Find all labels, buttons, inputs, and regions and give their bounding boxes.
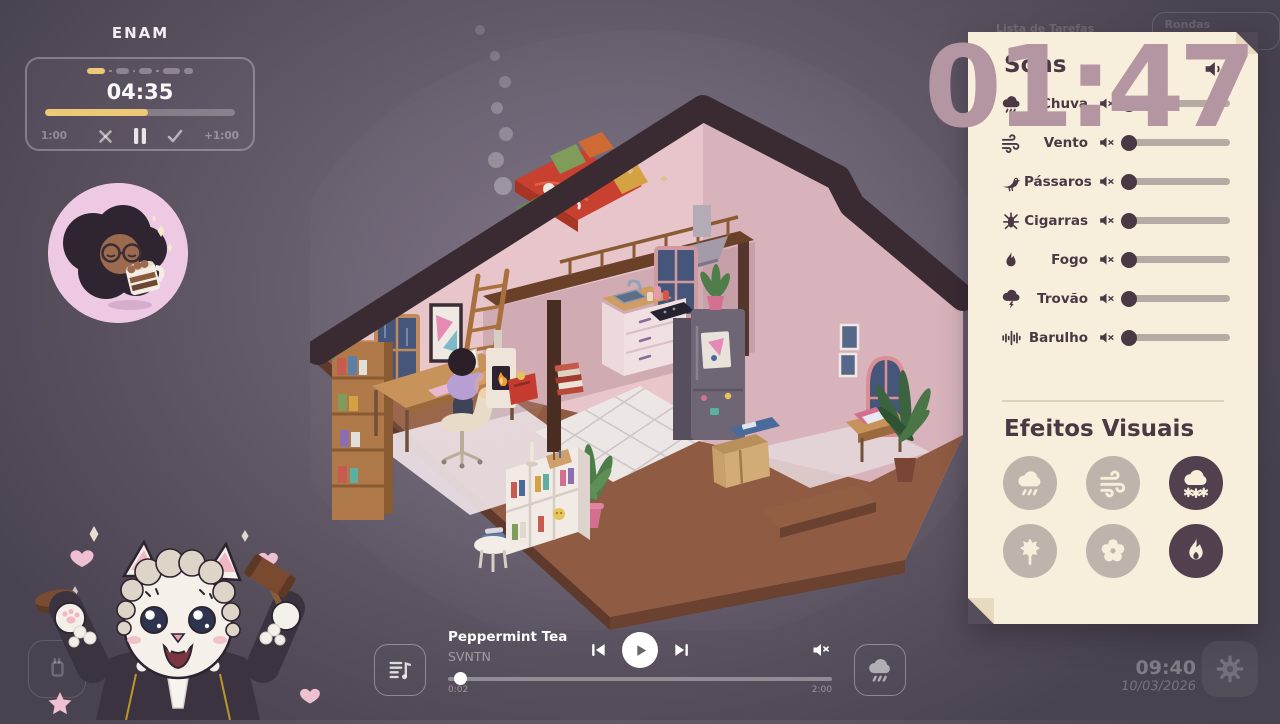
sound-label: Chuva <box>1024 96 1088 112</box>
sound-row-barulho: Barulho <box>968 318 1258 357</box>
mute-icon[interactable] <box>1096 134 1116 151</box>
player-progress-knob[interactable] <box>454 672 467 685</box>
settings-button[interactable] <box>1202 641 1258 697</box>
flame-icon <box>998 249 1024 271</box>
track-artist: SVNTN <box>448 649 491 664</box>
focus-timer-card: 04:35 1:00 +1:00 <box>25 57 255 151</box>
player-mute-button[interactable] <box>811 640 831 660</box>
next-track-button[interactable] <box>672 640 692 660</box>
effect-flowers-button[interactable] <box>1086 524 1140 578</box>
volume-slider[interactable] <box>1122 295 1230 302</box>
music-player: Peppermint Tea SVNTN 0:02 2:00 <box>370 625 910 705</box>
timer-segments <box>27 68 253 74</box>
sound-settings-panel: Sons Chuva Vento <box>968 32 1258 624</box>
check-icon <box>167 129 183 143</box>
volume-slider[interactable] <box>1122 334 1230 341</box>
rain-cloud-icon <box>865 655 895 685</box>
leaves-effect-icon <box>1014 535 1046 567</box>
judge-cat-svg <box>18 516 338 720</box>
sound-row-passaros: Pássaros <box>968 162 1258 201</box>
slider-knob[interactable] <box>1121 135 1137 151</box>
wind-icon <box>998 132 1024 154</box>
volume-slider[interactable] <box>1122 256 1230 263</box>
sound-label: Fogo <box>1024 252 1088 268</box>
session-title: ENAM <box>78 24 203 42</box>
slider-knob[interactable] <box>1121 330 1137 346</box>
slider-knob[interactable] <box>1121 96 1137 112</box>
flowers-effect-icon <box>1097 535 1129 567</box>
gear-icon <box>1213 652 1247 686</box>
cat-head <box>117 542 240 678</box>
storm-cloud-icon <box>998 288 1024 310</box>
rain-effect-icon <box>1014 467 1046 499</box>
playlist-music-icon <box>386 656 414 684</box>
fire-effect-icon <box>1180 535 1212 567</box>
sound-wave-icon <box>998 327 1024 349</box>
sound-row-trovao: Trovão <box>968 279 1258 318</box>
speaker-icon <box>1202 58 1224 80</box>
sound-row-fogo: Fogo <box>968 240 1258 279</box>
bookshelf <box>332 329 393 520</box>
sound-row-vento: Vento <box>968 123 1258 162</box>
effect-rain-button[interactable] <box>1003 456 1057 510</box>
timer-progress-fill <box>45 109 148 116</box>
sound-label: Barulho <box>1024 330 1088 346</box>
master-volume-button[interactable] <box>1202 58 1224 80</box>
mute-icon[interactable] <box>1096 290 1116 307</box>
pause-icon <box>133 128 147 144</box>
sound-mixer: Chuva Vento Pássaros <box>968 84 1258 357</box>
mute-icon[interactable] <box>1096 173 1116 190</box>
mute-speaker-icon <box>811 640 831 660</box>
system-date: 10/03/2026 <box>1120 679 1197 694</box>
skip-next-icon <box>672 640 692 660</box>
sound-label: Vento <box>1024 135 1088 151</box>
elapsed-time: 0:02 <box>448 685 468 695</box>
mute-icon[interactable] <box>1096 212 1116 229</box>
play-button[interactable] <box>622 632 658 668</box>
track-title: Peppermint Tea <box>448 629 567 645</box>
cancel-session-button[interactable] <box>96 127 114 145</box>
visual-effects-title: Efeitos Visuais <box>1004 416 1194 442</box>
effect-leaves-button[interactable] <box>1003 524 1057 578</box>
volume-slider[interactable] <box>1122 178 1230 185</box>
avatar-illustration <box>48 183 188 323</box>
mute-icon[interactable] <box>1096 329 1116 346</box>
timer-progress-bar <box>45 109 235 116</box>
wind-effect-icon <box>1097 467 1129 499</box>
add-time-button[interactable]: +1:00 <box>199 130 239 142</box>
bird-icon <box>998 171 1024 193</box>
book-stack <box>554 362 584 395</box>
visual-effects-grid <box>1003 456 1223 578</box>
timer-countdown: 04:35 <box>27 80 253 104</box>
play-icon <box>632 642 649 659</box>
slider-knob[interactable] <box>1121 291 1137 307</box>
corner-fold <box>1236 32 1258 54</box>
subtract-time-button[interactable]: 1:00 <box>41 130 81 142</box>
total-duration: 2:00 <box>812 685 832 695</box>
mute-icon[interactable] <box>1096 95 1116 112</box>
system-clock: 09:40 10/03/2026 <box>1121 657 1196 694</box>
volume-slider[interactable] <box>1122 217 1230 224</box>
sound-label: Cigarras <box>1024 213 1088 229</box>
sound-row-chuva: Chuva <box>968 84 1258 123</box>
volume-slider[interactable] <box>1122 139 1230 146</box>
effect-fire-button[interactable] <box>1169 524 1223 578</box>
previous-track-button[interactable] <box>588 640 608 660</box>
skip-previous-icon <box>588 640 608 660</box>
sounds-title: Sons <box>1004 52 1066 78</box>
rain-cloud-icon <box>998 93 1024 115</box>
judge-cat-mascot <box>18 516 338 720</box>
sound-label: Trovão <box>1024 291 1088 307</box>
volume-slider[interactable] <box>1122 100 1230 107</box>
pause-session-button[interactable] <box>131 127 149 145</box>
effect-snow-button[interactable] <box>1169 456 1223 510</box>
finish-session-button[interactable] <box>166 127 184 145</box>
snow-effect-icon <box>1180 467 1212 499</box>
slider-knob[interactable] <box>1121 213 1137 229</box>
corner-fold <box>968 598 994 624</box>
weather-scene-button[interactable] <box>854 644 906 696</box>
panel-divider <box>1002 400 1224 402</box>
sound-label: Pássaros <box>1024 174 1088 190</box>
effect-wind-button[interactable] <box>1086 456 1140 510</box>
sound-row-cigarras: Cigarras <box>968 201 1258 240</box>
user-avatar[interactable] <box>48 183 188 323</box>
cozy-room-svg <box>310 20 970 630</box>
seek-bar[interactable] <box>448 677 832 681</box>
x-icon <box>98 129 113 144</box>
mute-icon[interactable] <box>1096 251 1116 268</box>
cicada-icon <box>998 210 1024 232</box>
system-time: 09:40 <box>1121 657 1196 679</box>
slider-knob[interactable] <box>1121 252 1137 268</box>
playlist-button[interactable] <box>374 644 426 696</box>
room-illustration <box>310 20 970 630</box>
slider-knob[interactable] <box>1121 174 1137 190</box>
